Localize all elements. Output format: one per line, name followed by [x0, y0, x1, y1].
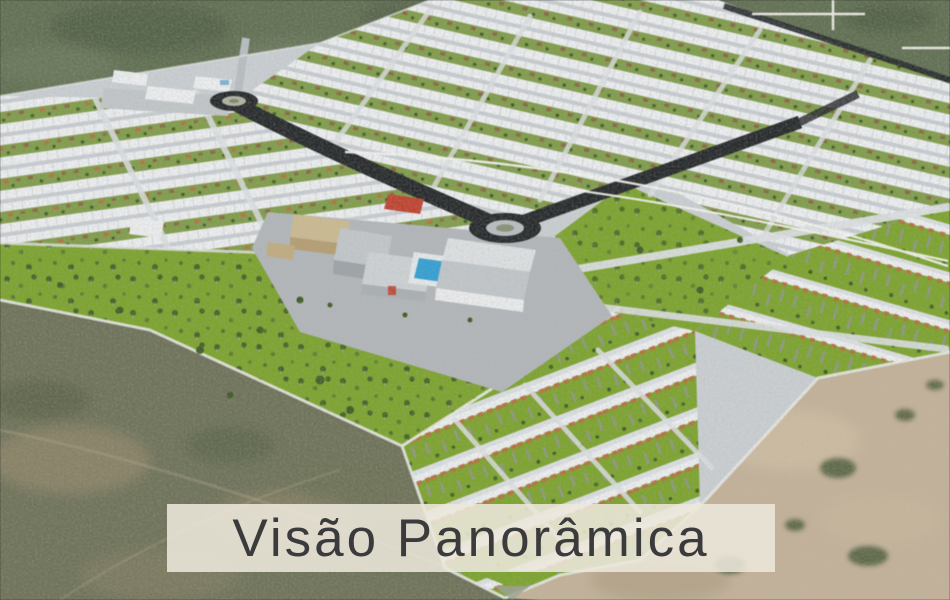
caption-text: Visão Panorâmica [232, 508, 709, 569]
caption-bar: Visão Panorâmica [167, 504, 775, 572]
screenshot: Visão Panorâmica [0, 0, 950, 600]
